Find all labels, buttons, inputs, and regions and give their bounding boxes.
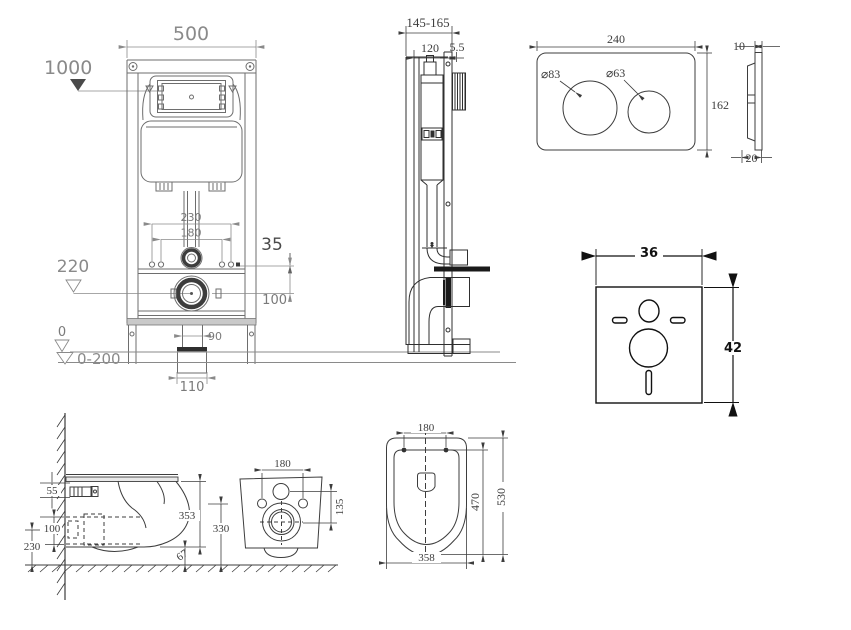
dim-small-button: ⌀63 <box>606 66 625 80</box>
dim-outlet-height: 220 <box>57 257 89 277</box>
dim-floor-gap: 67 <box>174 547 190 563</box>
level-marker-open <box>55 340 69 352</box>
mounting-rail <box>444 52 452 356</box>
drawing-svg: 500 1000 <box>0 0 851 630</box>
dim-frame-depth: 120 <box>421 41 439 55</box>
dim-bolt-span-outer: 230 <box>181 211 202 224</box>
wall-section-hatch <box>453 73 466 110</box>
dim-clearance: 230 <box>24 541 41 553</box>
dim-drain-drop: 100 <box>262 293 287 308</box>
small-flush-button <box>628 91 670 133</box>
dim-install-height: 1000 <box>44 57 92 79</box>
dim-depth-range: 145-165 <box>406 15 449 30</box>
dim-inner-length: 470 <box>468 493 482 511</box>
dim-plate-height: 162 <box>711 98 729 112</box>
toilet-top-outline <box>387 438 467 556</box>
frame-legs <box>129 325 256 364</box>
dim-fixing-span: 180 <box>274 458 291 470</box>
dim-drain-height: 100 <box>44 523 61 535</box>
dim-frame-width: 500 <box>173 23 209 45</box>
seat-inner-outline <box>394 450 459 545</box>
inlet-connector <box>450 250 468 265</box>
dim-plate-width: 240 <box>607 32 625 46</box>
flush-pipe-side <box>422 185 450 264</box>
level-marker-filled <box>70 79 86 91</box>
mounting-bracket-bar <box>434 267 490 272</box>
dim-total-length: 530 <box>494 488 508 506</box>
sound-mat-body <box>596 287 702 403</box>
fixing-bolt <box>219 262 224 267</box>
floor-hatch <box>28 565 336 572</box>
fixing-bolt <box>158 262 163 267</box>
access-panel <box>143 76 241 120</box>
dim-large-button: ⌀83 <box>541 67 560 81</box>
dim-floor-level: 0 <box>58 325 66 340</box>
dim-fixing-height: 330 <box>213 523 230 535</box>
water-inlet-hole <box>273 484 289 500</box>
level-marker-open <box>66 280 81 292</box>
flush-plate-front-view: 240 162 ⌀83 ⌀63 <box>537 32 729 150</box>
frame-front-view: 500 1000 <box>44 23 516 395</box>
fixing-hole <box>299 499 308 508</box>
bottom-rail <box>127 319 256 326</box>
dim-offset-35: 35 <box>261 235 283 255</box>
dim-plate-base-depth: 20 <box>746 151 758 165</box>
fixing-bolt <box>149 262 154 267</box>
cistern-side <box>421 56 443 186</box>
dim-bowl-width: 358 <box>418 552 435 564</box>
dim-bowl-height: 353 <box>179 510 196 522</box>
frame-side-view: 145-165 120 5.5 <box>406 15 490 356</box>
dim-hinge-span: 180 <box>418 422 435 434</box>
drain-bend-side <box>406 278 470 354</box>
toilet-seat <box>66 477 178 482</box>
cistern-tank <box>141 121 242 191</box>
technical-drawing-sheet: 500 1000 <box>0 0 851 630</box>
dim-drain-offset: 135 <box>334 498 346 515</box>
dim-adjust-range: 0-200 <box>77 350 121 368</box>
sound-mat-view: 36 42 <box>596 246 745 403</box>
fixing-hole <box>258 499 267 508</box>
flush-opening <box>418 473 436 492</box>
toilet-side-view: 55 100 230 353 67 330 <box>19 413 338 600</box>
drain-connector <box>452 278 470 307</box>
outlet-pipe <box>177 325 207 373</box>
toilet-bowl-profile <box>66 475 189 552</box>
dim-mat-width: 36 <box>640 246 658 261</box>
dim-mat-height: 42 <box>724 341 742 356</box>
dim-fixing-offset: 55 <box>47 485 59 497</box>
dim-outlet-box-width: 110 <box>180 380 205 395</box>
flush-plate-side-view: 10 20 <box>731 39 780 165</box>
fixing-bolt <box>228 262 233 267</box>
dim-plate-thickness: 10 <box>733 39 745 53</box>
drain-hole <box>260 501 303 545</box>
dim-bolt-span-inner: 180 <box>181 227 202 240</box>
toilet-top-view: 180 470 530 358 <box>387 422 509 569</box>
bowl-silhouette <box>264 548 298 558</box>
wall-hatch <box>57 415 65 595</box>
dim-outlet-pipe-width: 90 <box>208 330 222 343</box>
toilet-back-view: 180 135 <box>240 458 346 558</box>
